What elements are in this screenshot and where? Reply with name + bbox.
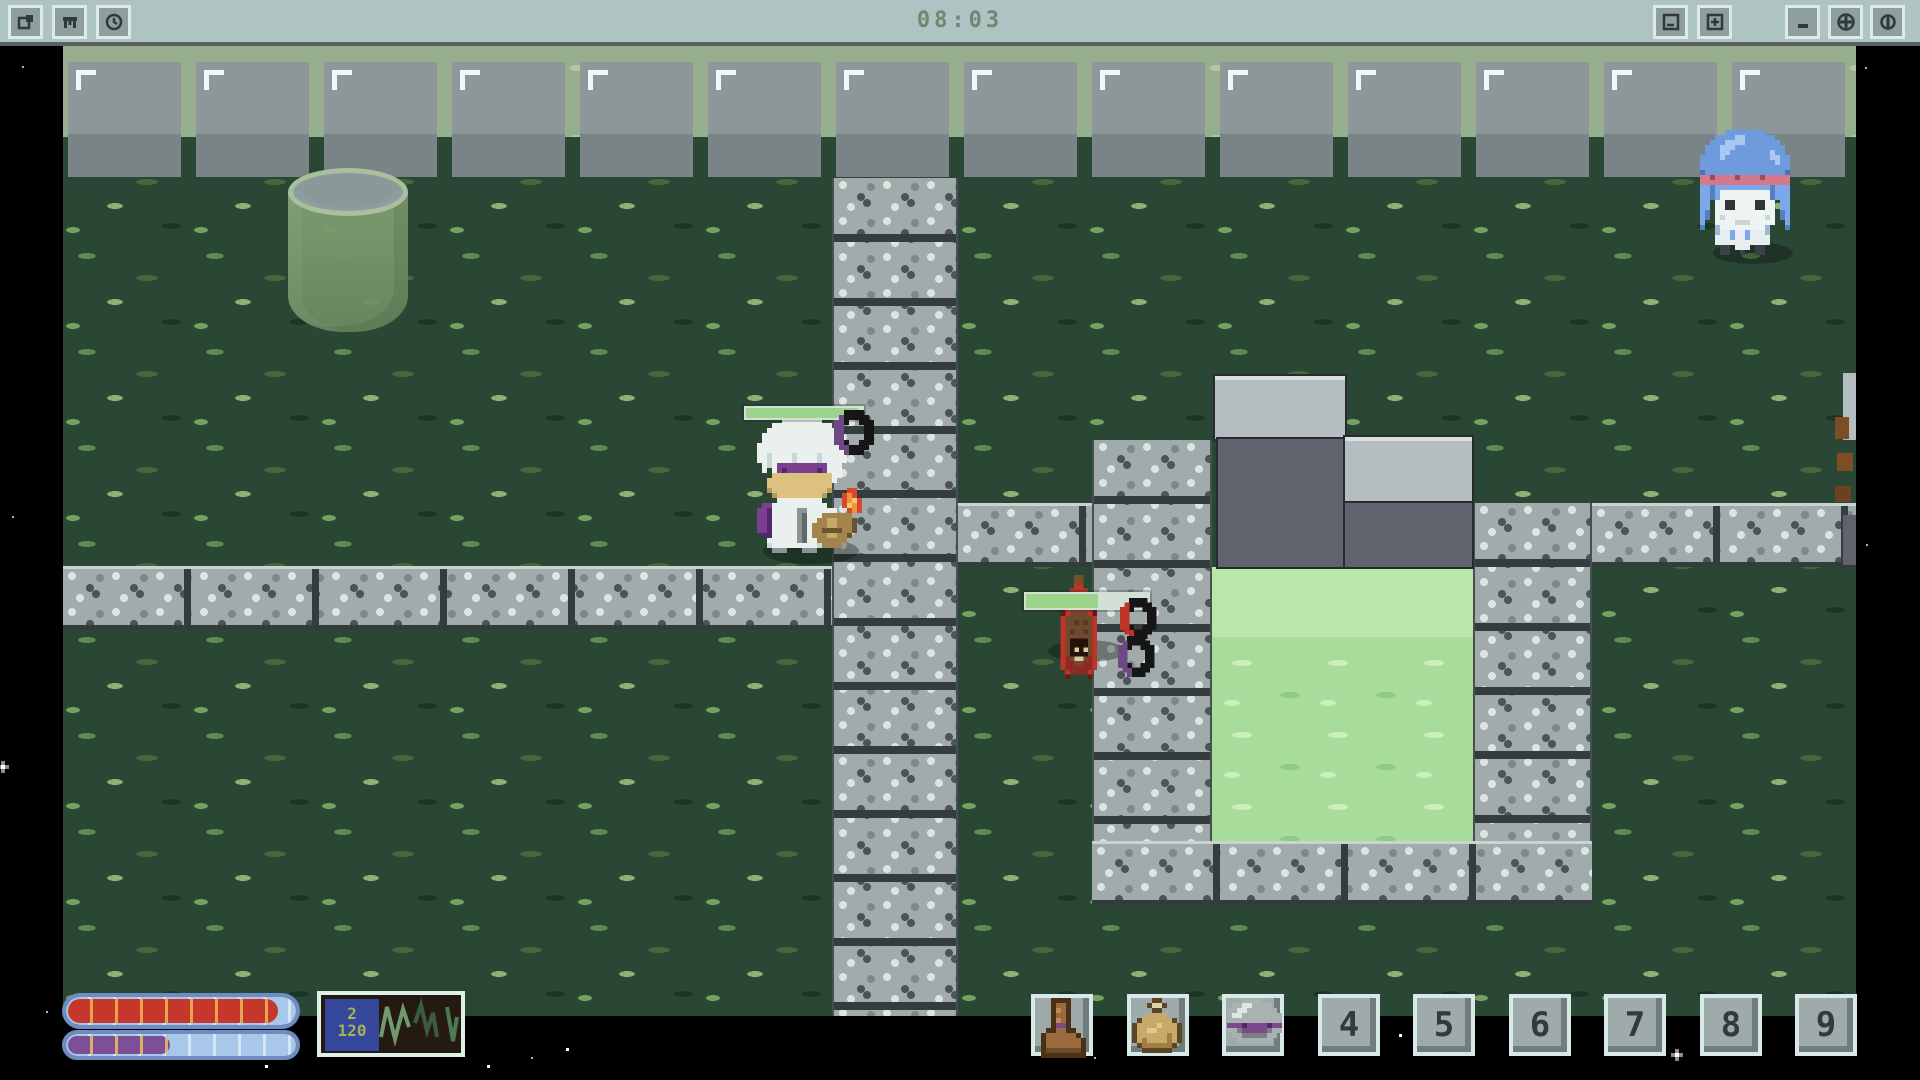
titlebar-button-map[interactable] <box>8 5 43 39</box>
wall-panel <box>196 62 309 177</box>
hotbar-slot-8[interactable]: 8 <box>1700 994 1762 1056</box>
wall-panel <box>1220 62 1333 177</box>
title-bar: 08:03 <box>0 0 1920 46</box>
wall-panel <box>580 62 693 177</box>
wall-panel-base <box>68 134 181 177</box>
hotbar-slot-number: 8 <box>1704 998 1758 1052</box>
hotbar-slot-7[interactable]: 7 <box>1604 994 1666 1056</box>
enemy-health-bar <box>1024 592 1150 610</box>
wall-panel-face <box>580 62 693 134</box>
player-shadow <box>763 538 859 564</box>
stone-block-front-1 <box>1218 439 1345 567</box>
hotbar-slot-9[interactable]: 9 <box>1795 994 1857 1056</box>
titlebar-button-zoom-out[interactable] <box>1653 5 1688 39</box>
stone-block-top-1 <box>1215 376 1345 439</box>
edge-block-fragment <box>1843 515 1856 565</box>
maximize-icon <box>1836 12 1856 32</box>
enemy-health-fill <box>1026 594 1098 608</box>
wall-panel <box>1092 62 1205 177</box>
hotbar-slot-number: 7 <box>1608 998 1662 1052</box>
hotbar-slot-number: 9 <box>1799 998 1853 1052</box>
map-icon <box>16 12 36 32</box>
wall-panel <box>324 62 437 177</box>
game-world <box>63 46 1856 1016</box>
wall-panel-base <box>836 134 949 177</box>
hotbar-slot-5[interactable]: 5 <box>1413 994 1475 1056</box>
wall-panel <box>836 62 949 177</box>
zoom-in-icon <box>1705 12 1725 32</box>
stone-block-top-2 <box>1345 437 1472 503</box>
player-health-bar <box>744 406 864 420</box>
wall-panel <box>452 62 565 177</box>
stone-path-mid <box>958 503 1092 567</box>
wall-panel-face <box>1092 62 1205 134</box>
barrel-lid <box>288 168 408 216</box>
star <box>22 66 24 68</box>
wall-panel-base <box>1092 134 1205 177</box>
game-screen: 08:03 2 120 456789 <box>0 0 1920 1080</box>
titlebar-button-close[interactable] <box>1870 5 1905 39</box>
wall-panel-face <box>836 62 949 134</box>
clock-display: 08:03 <box>860 8 1060 33</box>
wall-panel-face <box>324 62 437 134</box>
hotbar-slot-helmet[interactable] <box>1222 994 1284 1056</box>
titlebar-button-maximize[interactable] <box>1828 5 1863 39</box>
titlebar-button-clock[interactable] <box>96 5 131 39</box>
star <box>531 1057 533 1059</box>
hotbar-slot-boot[interactable] <box>1031 994 1093 1056</box>
wall-panel-base <box>580 134 693 177</box>
npc-shadow <box>1713 242 1793 264</box>
titlebar-button-minimize[interactable] <box>1785 5 1820 39</box>
pool-border-left <box>1092 440 1212 905</box>
hotbar-slot-6[interactable]: 6 <box>1509 994 1571 1056</box>
hotbar-slot-4[interactable]: 4 <box>1318 994 1380 1056</box>
minimize-icon <box>1793 12 1813 32</box>
wall-panel <box>68 62 181 177</box>
pool-water[interactable] <box>1212 567 1473 841</box>
star <box>12 516 14 518</box>
wall-panel-face <box>1732 62 1845 134</box>
hotbar-slot-number: 4 <box>1322 998 1376 1052</box>
wall-panel <box>964 62 1077 177</box>
wall-panel <box>1476 62 1589 177</box>
wall-panel-face <box>1604 62 1717 134</box>
player-health-fill <box>746 408 858 418</box>
stone-path-vertical <box>832 178 958 1016</box>
stone-path-right <box>1592 503 1856 567</box>
star <box>1399 1034 1402 1037</box>
wall-panel-base <box>708 134 821 177</box>
star <box>487 1065 490 1068</box>
titlebar-button-inventory[interactable] <box>52 5 87 39</box>
close-icon <box>1878 12 1898 32</box>
enemy-shadow <box>1048 640 1126 662</box>
wall-panel <box>1604 62 1717 177</box>
star <box>1094 1057 1096 1059</box>
star <box>46 1011 48 1013</box>
star <box>1675 1053 1679 1057</box>
wall-panel-face <box>68 62 181 134</box>
wall-panel-face <box>1476 62 1589 134</box>
hotbar-slot-number: 5 <box>1417 998 1471 1052</box>
clock-icon <box>104 12 124 32</box>
inventory-icon <box>60 12 80 32</box>
wall-panel-base <box>1732 134 1845 177</box>
wall-panel-face <box>1348 62 1461 134</box>
wall-panel-face <box>196 62 309 134</box>
star <box>1865 67 1867 69</box>
wall-panel-base <box>1476 134 1589 177</box>
wall-panel <box>1348 62 1461 177</box>
pool-border-bottom <box>1092 841 1592 905</box>
wall-panel-face <box>452 62 565 134</box>
edge-debris-3 <box>1835 486 1851 502</box>
star <box>566 1048 569 1051</box>
zoom-out-icon <box>1661 12 1681 32</box>
wall-panel-base <box>964 134 1077 177</box>
wall-panel-base <box>1604 134 1717 177</box>
star <box>1 765 5 769</box>
wall-panel <box>1732 62 1845 177</box>
wall-panel-face <box>964 62 1077 134</box>
hotbar-slot-pouch[interactable] <box>1127 994 1189 1056</box>
wall-panel-base <box>1220 134 1333 177</box>
barrel[interactable] <box>288 168 408 332</box>
wall-panel-face <box>708 62 821 134</box>
wall-panel <box>708 62 821 177</box>
wall-panel-base <box>452 134 565 177</box>
edge-debris-2 <box>1837 453 1853 471</box>
stone-block-front-2 <box>1345 503 1472 567</box>
edge-debris-1 <box>1835 417 1849 439</box>
hotbar-slot-number: 6 <box>1513 998 1567 1052</box>
wall-panel-face <box>1220 62 1333 134</box>
star <box>265 1065 268 1068</box>
wall-panel-base <box>1348 134 1461 177</box>
titlebar-button-zoom-in[interactable] <box>1697 5 1732 39</box>
star <box>1866 544 1868 546</box>
stone-path-left <box>63 566 832 630</box>
